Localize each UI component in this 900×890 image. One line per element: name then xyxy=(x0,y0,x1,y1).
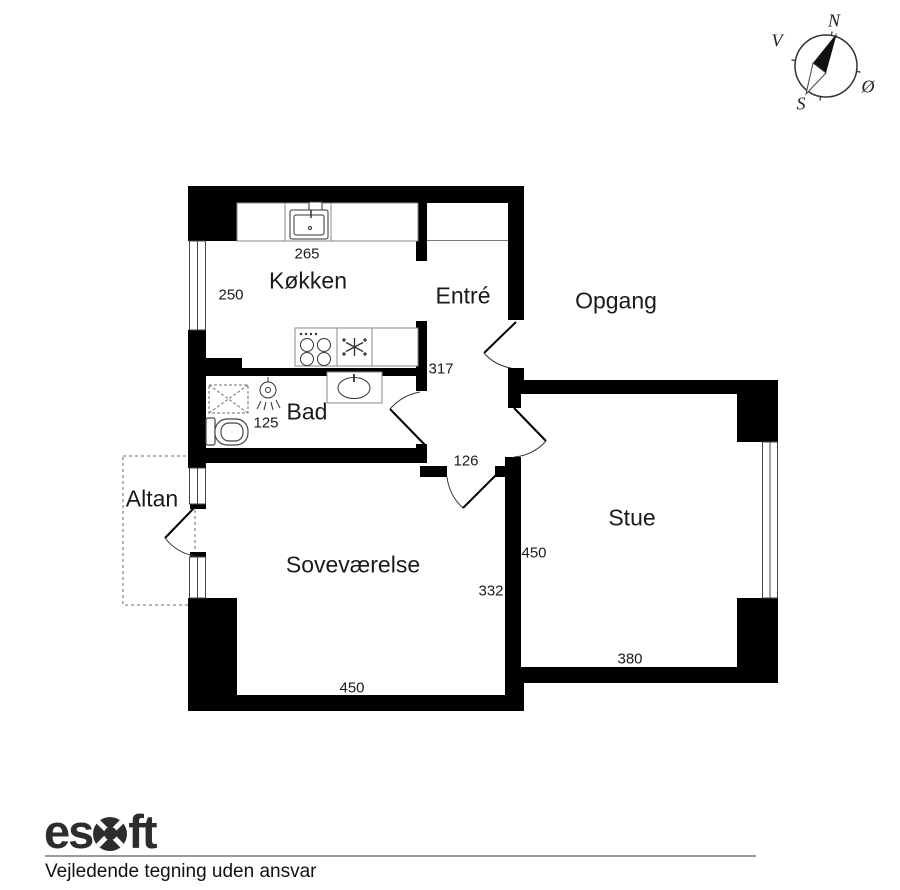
toilet-icon xyxy=(206,418,248,445)
room-label-bath: Bad xyxy=(287,401,328,424)
footer-disclaimer: Vejledende tegning uden ansvar xyxy=(45,861,317,883)
bedroom-window-upper-icon xyxy=(190,468,206,504)
logo-text-suffix: ft xyxy=(128,808,155,855)
compass-icon xyxy=(792,32,861,101)
dim-living-bottom: 380 xyxy=(617,652,642,667)
bedroom-window-lower-icon xyxy=(190,557,206,598)
dim-kitchen-top: 265 xyxy=(294,247,319,262)
kitchen-window-icon xyxy=(190,241,206,330)
dim-bedroom-right: 332 xyxy=(478,584,503,599)
balcony-door-icon xyxy=(165,508,195,556)
stove-icon xyxy=(295,328,337,366)
dim-entry-right: 317 xyxy=(428,362,453,377)
room-label-kitchen: Køkken xyxy=(269,270,347,293)
fridge-icon xyxy=(337,328,372,366)
compass-label-south: S xyxy=(797,94,806,115)
dim-bedroom-bottom: 450 xyxy=(339,681,364,696)
washbasin-icon xyxy=(327,372,382,403)
shower-tray-icon xyxy=(209,385,248,413)
room-label-bedroom: Soveværelse xyxy=(286,554,420,577)
floorplan-page: Køkken Entré Opgang Bad Altan Soveværels… xyxy=(0,0,900,890)
compass-label-west: V xyxy=(772,31,783,52)
dim-bath: 125 xyxy=(253,416,278,431)
balcony-outline xyxy=(123,456,195,605)
footer-divider xyxy=(45,855,756,857)
entrance-door-icon xyxy=(484,322,516,368)
walls xyxy=(188,186,778,711)
compass-label-north: N xyxy=(828,11,840,32)
kitchen-counter-top xyxy=(237,202,418,241)
kitchen-counter-bottom xyxy=(295,328,418,366)
bathroom-door-icon xyxy=(390,392,425,445)
logo-text-prefix: es xyxy=(44,808,92,855)
shower-icon xyxy=(257,377,280,410)
dim-hall: 126 xyxy=(453,454,478,469)
room-label-stairwell: Opgang xyxy=(575,290,657,313)
compass-label-east: Ø xyxy=(862,77,875,98)
bedroom-door-icon xyxy=(447,474,497,508)
room-label-balcony: Altan xyxy=(126,488,178,511)
dim-living-left: 450 xyxy=(521,546,546,561)
esoft-aperture-icon xyxy=(93,817,127,851)
room-label-entry: Entré xyxy=(436,285,491,308)
dim-kitchen-left: 250 xyxy=(218,288,243,303)
esoft-logo: esft xyxy=(44,808,156,855)
counter-cabinet xyxy=(372,328,418,366)
floorplan-drawing xyxy=(0,0,900,890)
living-room-window-icon xyxy=(763,442,778,598)
living-room-door-icon xyxy=(514,408,546,457)
room-label-living-room: Stue xyxy=(608,507,655,530)
